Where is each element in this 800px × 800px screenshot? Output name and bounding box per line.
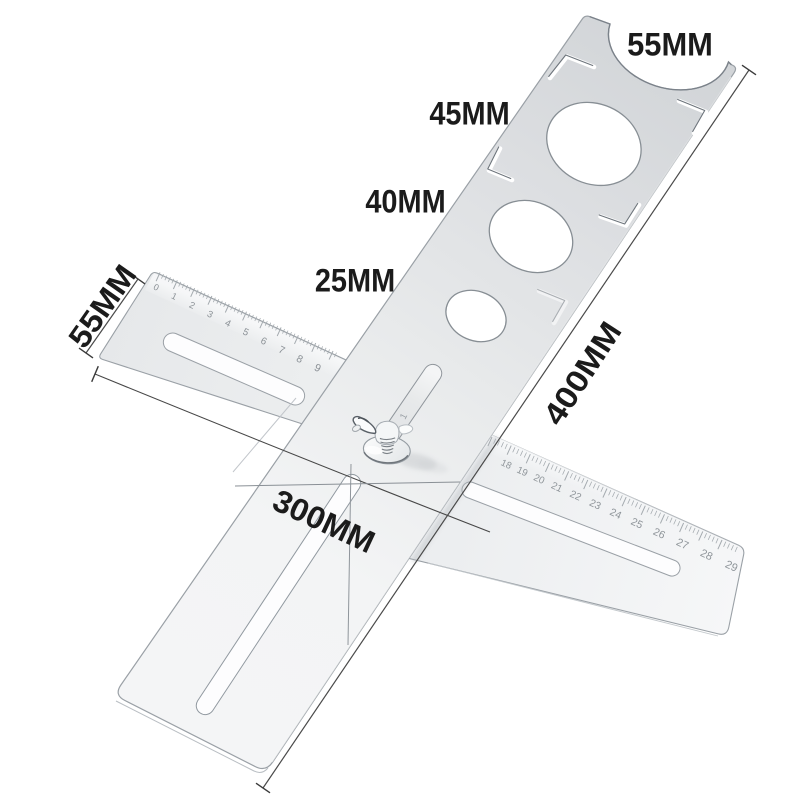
svg-text:55MM: 55MM — [627, 26, 713, 63]
svg-text:25MM: 25MM — [315, 262, 395, 299]
svg-text:40MM: 40MM — [365, 183, 445, 220]
svg-text:45MM: 45MM — [429, 95, 509, 132]
